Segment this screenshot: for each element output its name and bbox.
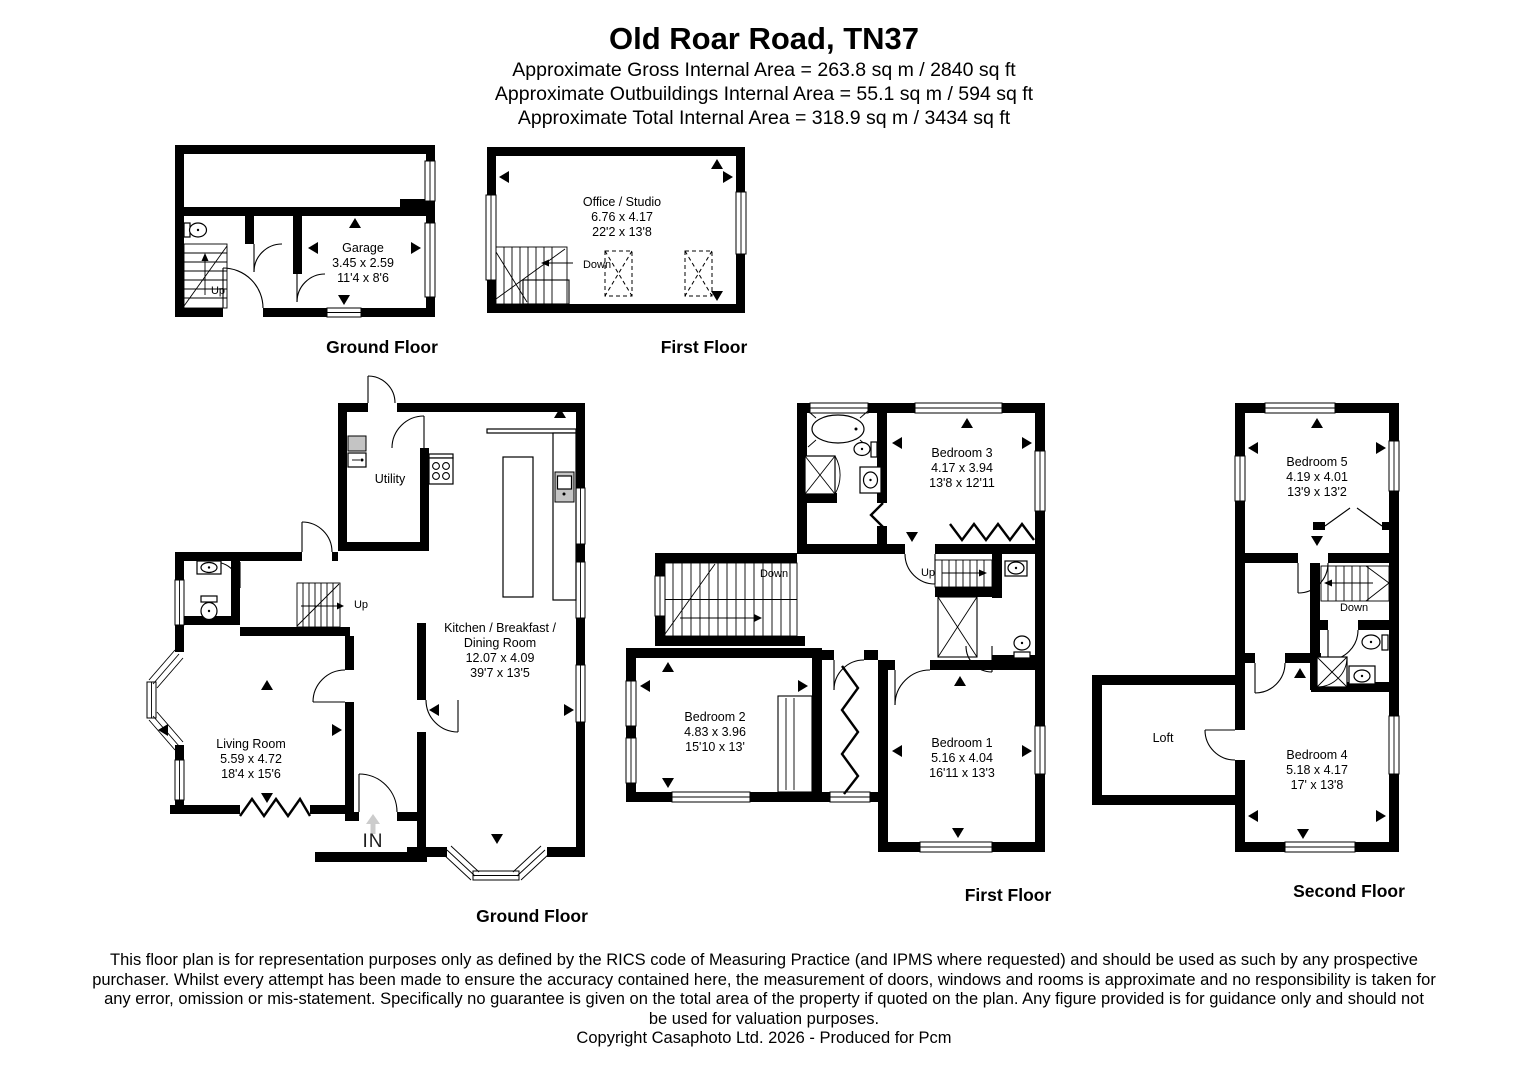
- room-dim-imperial: 16'11 x 13'3: [902, 766, 1022, 781]
- room-label-office-studio: Office / Studio 6.76 x 4.17 22'2 x 13'8: [556, 195, 688, 240]
- room-dim-imperial: 18'4 x 15'6: [191, 767, 311, 782]
- room-dim-metric: 6.76 x 4.17: [556, 210, 688, 225]
- stairs-up-label: Up: [346, 599, 376, 611]
- stairs-icon: [297, 583, 344, 627]
- entrance-in-label: IN: [345, 831, 401, 853]
- room-dim-imperial: 22'2 x 13'8: [556, 225, 688, 240]
- room-dim-metric: 3.45 x 2.59: [296, 256, 430, 271]
- header: Old Roar Road, TN37 Approximate Gross In…: [0, 20, 1528, 130]
- toilet-icon: [1014, 636, 1030, 658]
- stairs-icon: [496, 247, 573, 304]
- total-area-line: Approximate Total Internal Area = 318.9 …: [0, 106, 1528, 130]
- room-dim-imperial: 11'4 x 8'6: [296, 271, 430, 286]
- room-dim-metric: 4.83 x 3.96: [655, 725, 775, 740]
- plan-main-first: Bedroom 3 4.17 x 3.94 13'8 x 12'11 Bedro…: [620, 396, 1054, 870]
- room-name: Loft: [1123, 731, 1203, 746]
- room-dim-metric: 12.07 x 4.09: [420, 651, 580, 666]
- gross-area-line: Approximate Gross Internal Area = 263.8 …: [0, 58, 1528, 82]
- room-dim-imperial: 15'10 x 13': [655, 740, 775, 755]
- stairs-down-label: Down: [1334, 602, 1374, 614]
- shower-icon: [805, 456, 840, 494]
- floor-label-outbuilding-ground: Ground Floor: [282, 337, 482, 358]
- room-dim-metric: 5.18 x 4.17: [1257, 763, 1377, 778]
- stairs-icon: [1321, 566, 1389, 601]
- skylight-icon: [605, 251, 632, 296]
- kitchen-island: [503, 457, 533, 597]
- stairs-up-label: Up: [203, 285, 233, 297]
- room-name: Utility: [350, 472, 430, 487]
- windows: [327, 161, 435, 317]
- room-name: Living Room: [191, 737, 311, 752]
- plan-main-second: Bedroom 5 4.19 x 4.01 13'9 x 13'2 Loft B…: [1088, 396, 1408, 872]
- room-label-kitchen: Kitchen / Breakfast / Dining Room 12.07 …: [420, 621, 580, 681]
- skylight-icon: [685, 251, 712, 296]
- room-dim-imperial: 13'9 x 13'2: [1257, 485, 1377, 500]
- room-label-bedroom2: Bedroom 2 4.83 x 3.96 15'10 x 13': [655, 710, 775, 755]
- disclaimer-line: be used for valuation purposes.: [0, 1010, 1528, 1030]
- room-label-bedroom3: Bedroom 3 4.17 x 3.94 13'8 x 12'11: [902, 446, 1022, 491]
- stairs-down-label: Down: [575, 259, 619, 271]
- room-label-bedroom4: Bedroom 4 5.18 x 4.17 17' x 13'8: [1257, 748, 1377, 793]
- room-name: Dining Room: [420, 636, 580, 651]
- stairs-icon: [184, 244, 227, 308]
- floor-label-main-second: Second Floor: [1249, 881, 1449, 902]
- room-dim-metric: 5.16 x 4.04: [902, 751, 1022, 766]
- room-name: Kitchen / Breakfast /: [420, 621, 580, 636]
- floor-label-outbuilding-first: First Floor: [604, 337, 804, 358]
- sink-icon: [555, 472, 574, 502]
- bath-icon: [808, 411, 868, 447]
- disclaimer-line: purchaser. Whilst every attempt has been…: [0, 971, 1528, 991]
- basin-icon: [860, 467, 881, 493]
- floor-label-main-ground: Ground Floor: [432, 906, 632, 927]
- sink-icon: [348, 436, 366, 467]
- plan-outbuilding-first: Office / Studio 6.76 x 4.17 22'2 x 13'8 …: [487, 147, 745, 315]
- wardrobe-zigzag: [240, 799, 310, 816]
- room-name: Bedroom 1: [902, 736, 1022, 751]
- toilet-icon: [184, 223, 207, 237]
- copyright-line: Copyright Casaphoto Ltd. 2026 - Produced…: [0, 1029, 1528, 1049]
- disclaimer-line: any error, omission or mis-statement. Sp…: [0, 990, 1528, 1010]
- room-name: Bedroom 5: [1257, 455, 1377, 470]
- room-dim-imperial: 17' x 13'8: [1257, 778, 1377, 793]
- shower-icon: [1317, 657, 1347, 687]
- floor-label-main-first: First Floor: [908, 885, 1108, 906]
- room-name: Bedroom 4: [1257, 748, 1377, 763]
- stairs-down-label: Down: [754, 568, 794, 580]
- plan-outbuilding-ground: Garage 3.45 x 2.59 11'4 x 8'6 Up: [175, 145, 435, 320]
- disclaimer-line: This floor plan is for representation pu…: [0, 951, 1528, 971]
- toilet-icon: [201, 596, 217, 620]
- room-name: Garage: [296, 241, 430, 256]
- room-dim-metric: 4.19 x 4.01: [1257, 470, 1377, 485]
- basin-icon: [1349, 666, 1375, 684]
- page-title: Old Roar Road, TN37: [0, 20, 1528, 58]
- outbuildings-area-line: Approximate Outbuildings Internal Area =…: [0, 82, 1528, 106]
- room-dim-imperial: 39'7 x 13'5: [420, 666, 580, 681]
- room-dim-metric: 4.17 x 3.94: [902, 461, 1022, 476]
- room-name: Bedroom 3: [902, 446, 1022, 461]
- room-label-loft: Loft: [1123, 731, 1203, 746]
- stairs-up-label: Up: [914, 567, 942, 579]
- toilet-icon: [1362, 635, 1388, 650]
- room-dim-metric: 5.59 x 4.72: [191, 752, 311, 767]
- room-label-bedroom5: Bedroom 5 4.19 x 4.01 13'9 x 13'2: [1257, 455, 1377, 500]
- stairs-icon: [935, 560, 992, 587]
- basin-icon: [1005, 561, 1027, 576]
- doors: [1205, 508, 1382, 760]
- room-label-living: Living Room 5.59 x 4.72 18'4 x 15'6: [191, 737, 311, 782]
- room-dim-imperial: 13'8 x 12'11: [902, 476, 1022, 491]
- room-label-garage: Garage 3.45 x 2.59 11'4 x 8'6: [296, 241, 430, 286]
- room-name: Office / Studio: [556, 195, 688, 210]
- floorplan-sheet: Old Roar Road, TN37 Approximate Gross In…: [0, 0, 1528, 1080]
- cupboard-icon: [938, 597, 977, 657]
- room-label-bedroom1: Bedroom 1 5.16 x 4.04 16'11 x 13'3: [902, 736, 1022, 781]
- room-name: Bedroom 2: [655, 710, 775, 725]
- toilet-icon: [854, 442, 877, 457]
- hob-icon: [429, 454, 453, 484]
- plan-main-ground: Utility Kitchen / Breakfast / Dining Roo…: [145, 370, 590, 895]
- room-label-utility: Utility: [350, 472, 430, 487]
- basin-icon: [197, 561, 221, 574]
- disclaimer: This floor plan is for representation pu…: [0, 951, 1528, 1049]
